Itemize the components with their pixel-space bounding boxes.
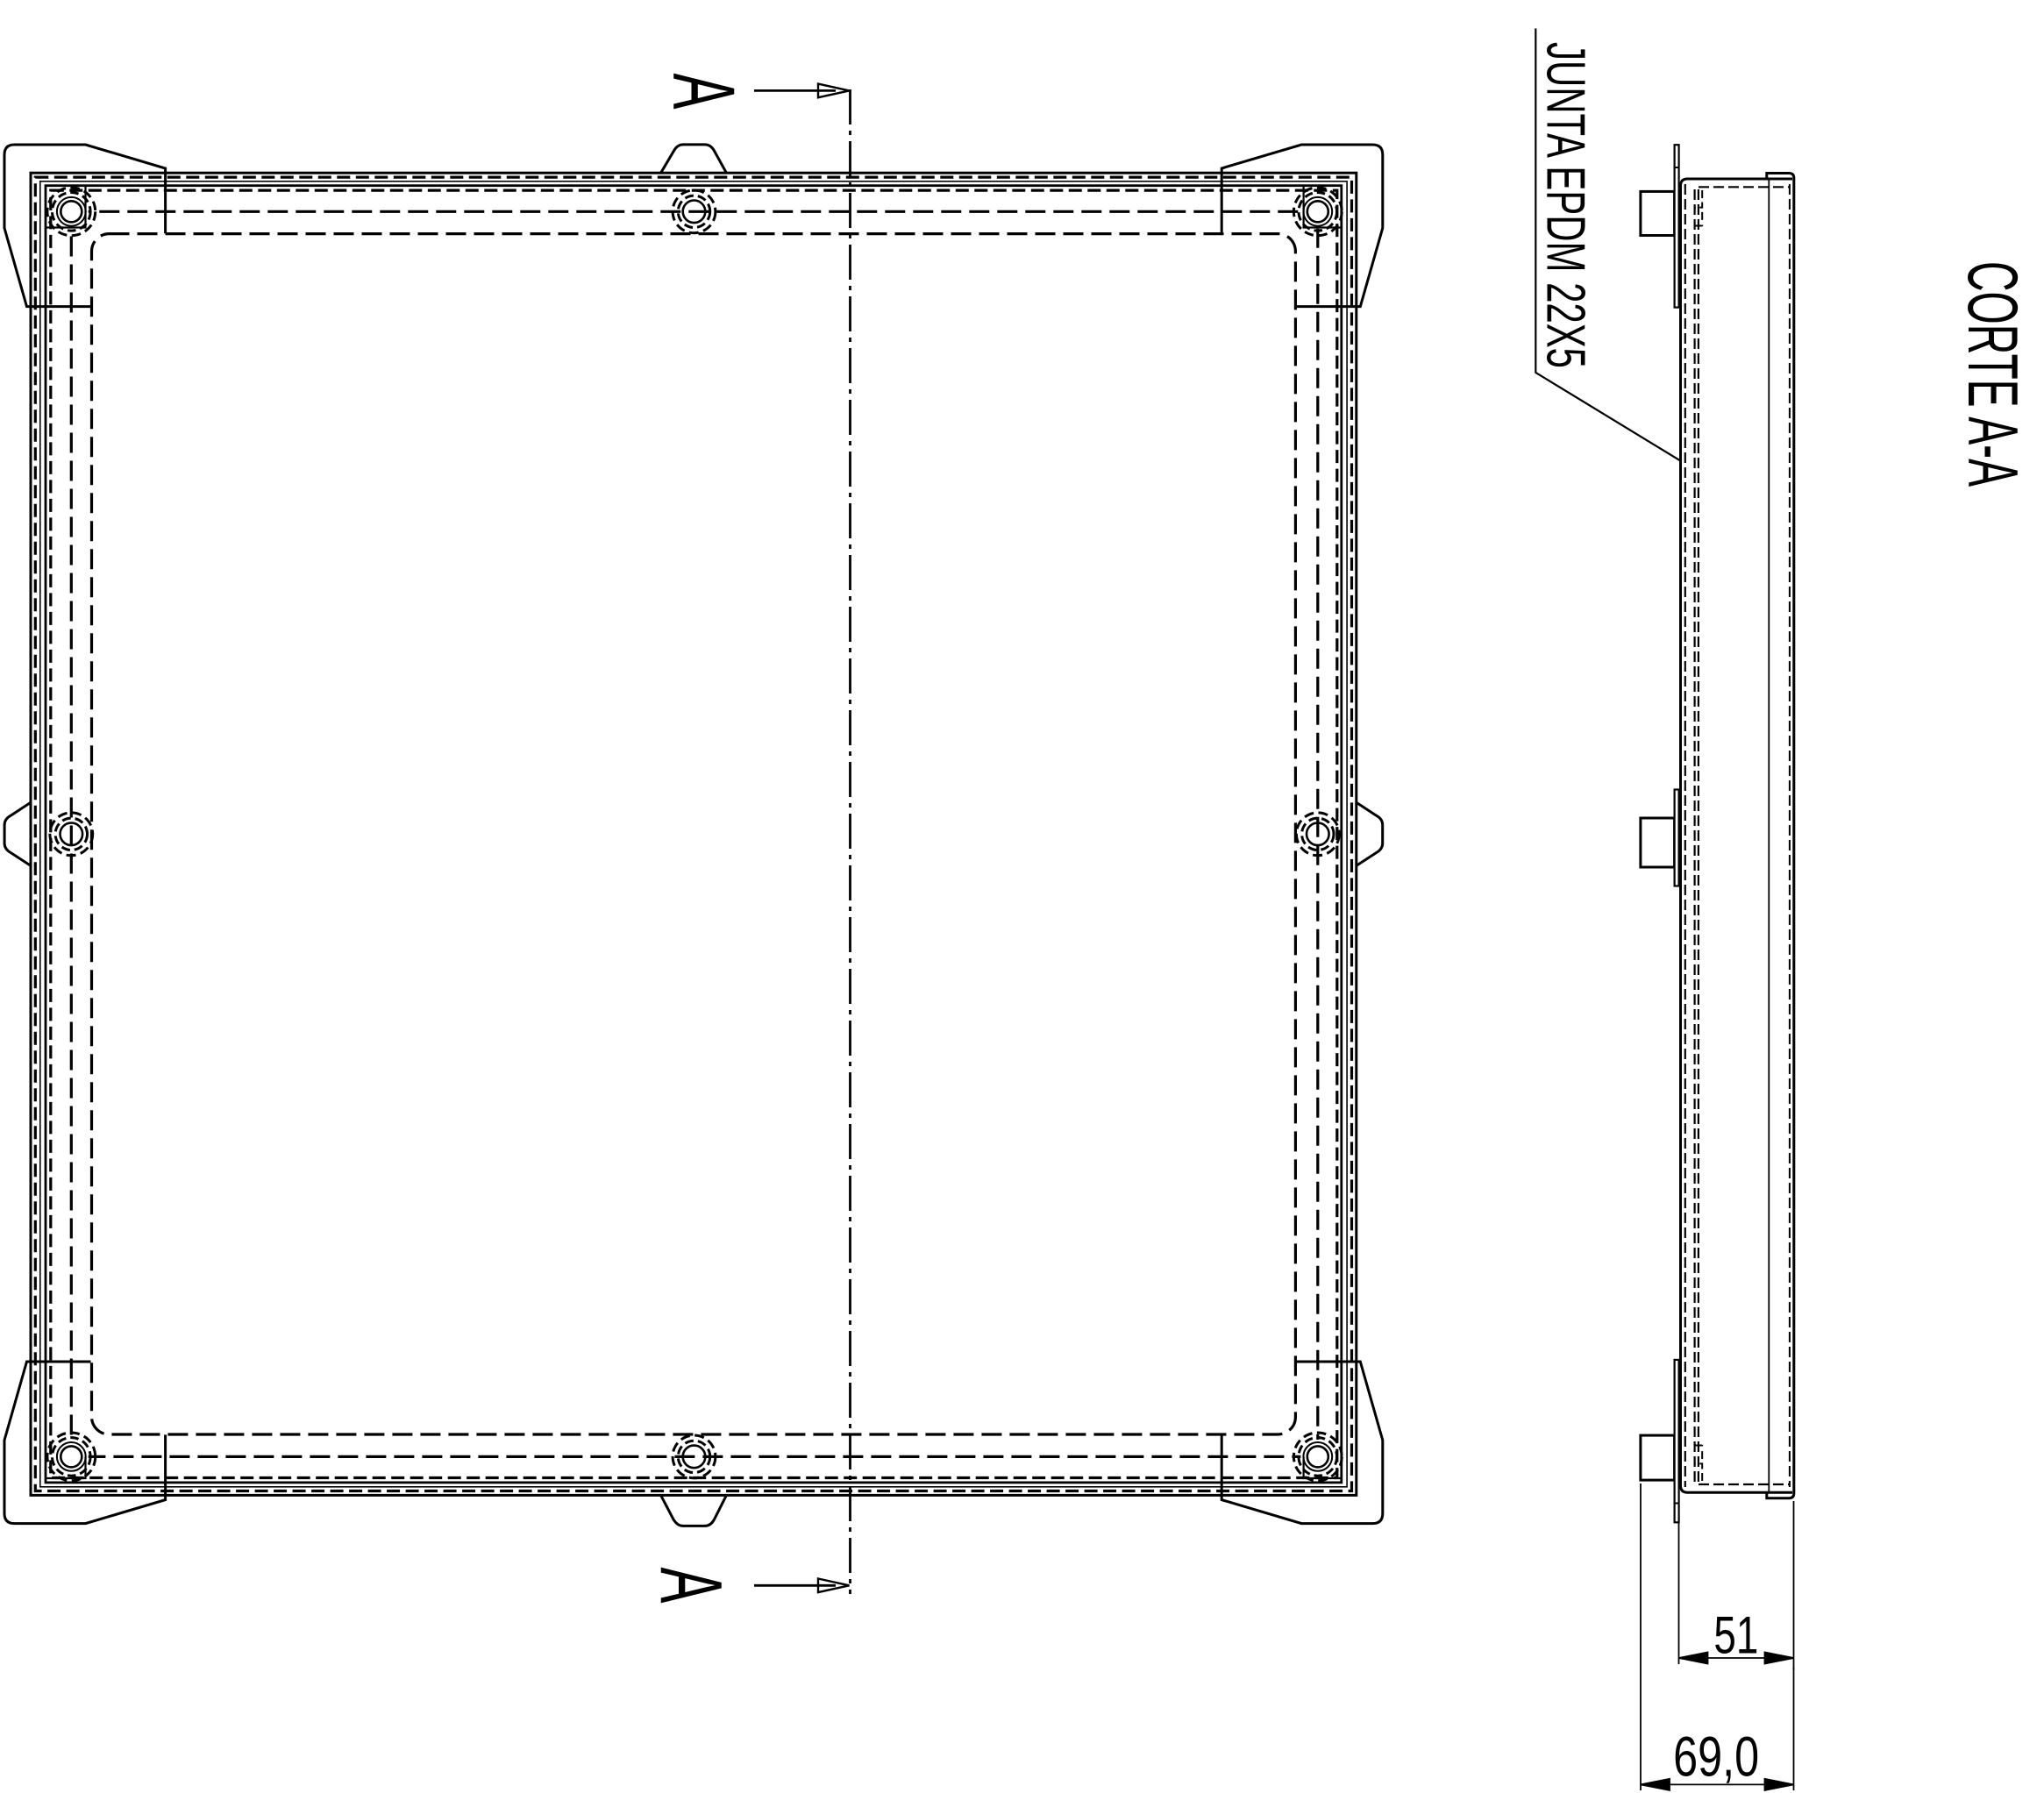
svg-text:JUNTA EPDM 22X5: JUNTA EPDM 22X5 xyxy=(1535,42,1596,368)
svg-text:A: A xyxy=(642,1568,740,1604)
svg-text:51: 51 xyxy=(1713,1606,1758,1665)
svg-text:CORTE A-A: CORTE A-A xyxy=(1953,261,2032,487)
svg-text:69,0: 69,0 xyxy=(1673,1725,1759,1789)
svg-text:A: A xyxy=(655,74,753,110)
